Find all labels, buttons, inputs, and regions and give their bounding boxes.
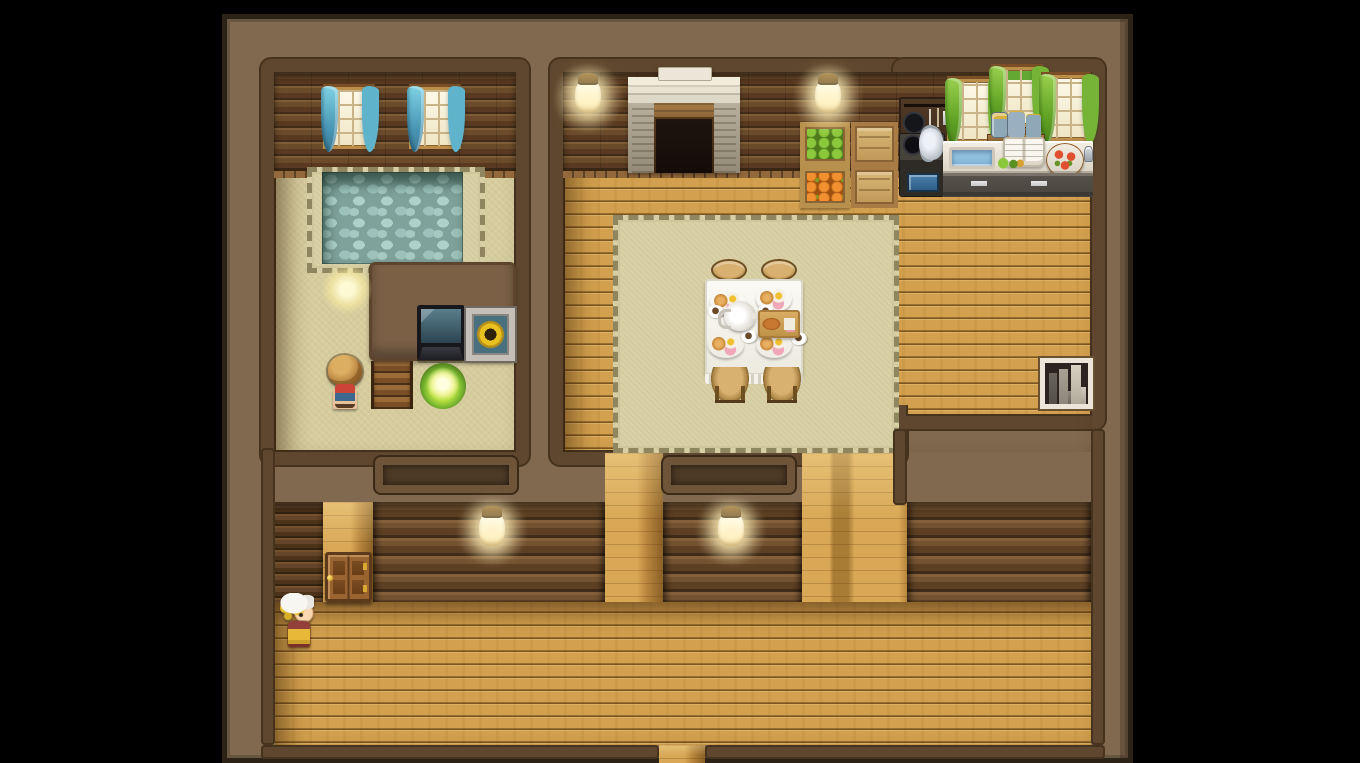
kitchen-counter-base xyxy=(943,173,1093,197)
veggie-plate xyxy=(993,157,1027,171)
stool-bottom-right xyxy=(763,367,801,403)
npc-girl-white-bonnet[interactable] xyxy=(277,593,317,649)
wall-lamp-1 xyxy=(575,81,601,113)
meal-plate-3 xyxy=(708,332,744,358)
crate-carrots xyxy=(800,166,850,208)
fireplace xyxy=(628,67,740,173)
sink-basin xyxy=(949,147,995,169)
window-blue-2 xyxy=(409,87,461,149)
bookshelf[interactable] xyxy=(1040,358,1093,409)
glowing-bush xyxy=(420,363,466,409)
stove-with-kettle xyxy=(899,133,945,197)
wall-lamp-3 xyxy=(479,514,505,546)
stool-top-left xyxy=(711,259,747,281)
stairs-down[interactable] xyxy=(371,361,413,409)
object-layer xyxy=(227,19,1128,758)
light-orb xyxy=(321,263,373,315)
npc-boy-brown-hair[interactable] xyxy=(327,355,363,411)
window-blue-1 xyxy=(323,87,375,149)
crate-plain-2 xyxy=(851,166,898,208)
game-screen xyxy=(0,0,1360,763)
wooden-door[interactable] xyxy=(325,552,372,602)
salt-shaker xyxy=(1084,146,1093,162)
stool-top-right xyxy=(761,259,797,281)
coffee-cup-3 xyxy=(740,330,757,343)
pizza xyxy=(1046,143,1084,177)
teapot xyxy=(724,301,756,331)
sunflower-picture xyxy=(466,308,515,361)
cutting-board-bread xyxy=(758,310,800,338)
game-viewport[interactable] xyxy=(222,14,1133,763)
wall-lamp-2 xyxy=(815,81,841,113)
wall-lamp-4 xyxy=(718,514,744,546)
window-green-2 xyxy=(1041,75,1091,141)
stool-bottom-left xyxy=(711,367,749,403)
tv[interactable] xyxy=(417,305,465,360)
